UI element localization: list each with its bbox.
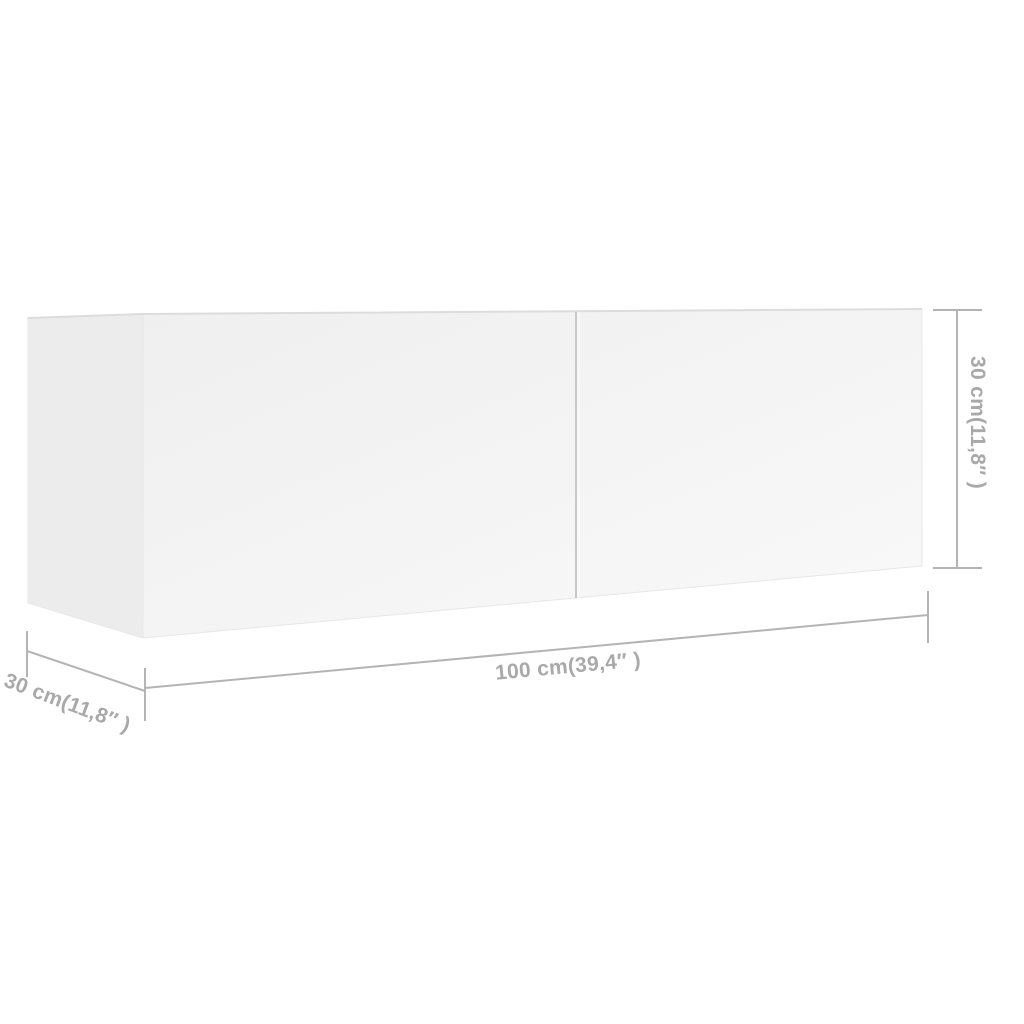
height-dimension-label: 30 cm(11,8″ ) bbox=[966, 356, 989, 489]
diagram-canvas bbox=[0, 0, 1024, 1024]
cabinet-side-face bbox=[28, 314, 143, 638]
product-dimension-diagram: 100 cm(39,4″ ) 30 cm(11,8″ ) 30 cm(11,8″… bbox=[0, 0, 1024, 1024]
tv-cabinet bbox=[28, 309, 922, 638]
cabinet-front-face bbox=[143, 309, 922, 638]
